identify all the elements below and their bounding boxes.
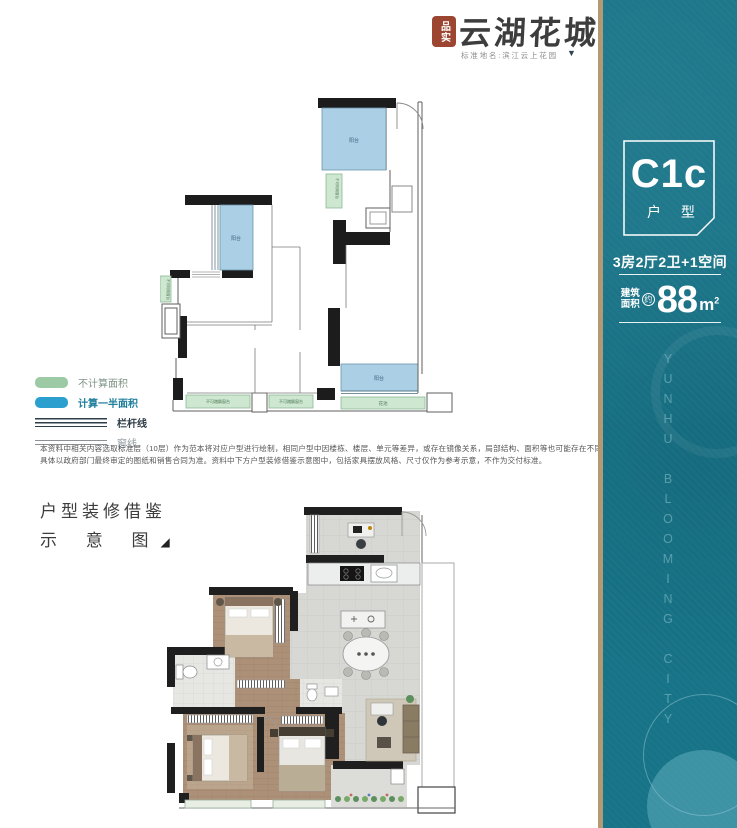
section-heading-line1: 户型装修借鉴 [40, 497, 170, 522]
legend-label: 计算一半面积 [78, 395, 138, 410]
pillow [204, 739, 212, 755]
approx-circle: 约 [642, 293, 655, 306]
headboard [225, 597, 273, 606]
pillow [305, 739, 321, 748]
section-heading-line2: 示 意 图◢ [40, 526, 170, 551]
green-swatch [35, 377, 68, 388]
bedroom-a-furniture [216, 597, 282, 657]
pillow [229, 609, 247, 617]
sink [207, 655, 229, 669]
plant [406, 695, 414, 703]
toilet-tank [176, 665, 183, 679]
brand-arrow-icon: ▼ [567, 48, 576, 58]
sink [325, 687, 338, 696]
unit-layout: 3房2厅2卫+1空间 [603, 252, 737, 272]
balcony-left-label: 阳台 [231, 235, 241, 242]
nightstand [270, 729, 278, 737]
divider-line [619, 274, 721, 275]
kitchen-sink [371, 565, 397, 582]
toilet-tank [307, 684, 317, 689]
washer [391, 769, 404, 784]
legend-item-non-counted: 不计算面积 [35, 376, 195, 388]
sofa [403, 705, 419, 753]
toilet [183, 666, 197, 678]
headboard [193, 735, 202, 781]
legend-item-railing: 栏杆线 [35, 416, 195, 428]
toilet [307, 689, 317, 701]
blanket [229, 735, 247, 781]
balcony-bottom-label: 阳台 [374, 375, 384, 382]
blanket [225, 635, 273, 657]
flyer-page: 品实 云湖花城 标准地名:滨江云上花园 ▼ [0, 0, 737, 828]
side-banner: C1c 户 型 3房2厅2卫+1空间 建筑 面积 约 88 m2 YUNHU B… [598, 0, 737, 828]
legend-label: 栏杆线 [117, 415, 147, 430]
blue-swatch [35, 397, 68, 408]
floorplan-furnished [163, 503, 463, 815]
cooktop [340, 566, 364, 581]
pillow [251, 609, 269, 617]
bay-window-label: 不可踏飘窗台 [279, 398, 303, 404]
partitions [187, 205, 346, 393]
pillow [204, 759, 212, 775]
area-label-bottom: 面积 [621, 299, 640, 310]
legend-label: 不计算面积 [78, 375, 128, 390]
desk-chair [356, 539, 366, 549]
duct-label: 不可利用窗台 [335, 178, 340, 199]
unit-code: C1c [623, 152, 715, 197]
area-unit-m: m [699, 295, 714, 314]
area-unit: m2 [699, 295, 719, 315]
divider-line [619, 322, 721, 323]
half-area-rooms [220, 108, 418, 391]
nightstand [187, 775, 193, 781]
blanket [279, 765, 325, 791]
coffee-table [377, 737, 391, 748]
living-room-furniture [366, 695, 419, 761]
unit-badge: C1c 户 型 [623, 140, 715, 236]
brand-subtitle: 标准地名:滨江云上花园 [461, 50, 558, 61]
dining-set [343, 629, 389, 680]
section-heading: 户型装修借鉴 示 意 图◢ [40, 497, 170, 551]
section-heading-text: 示 意 图 [40, 531, 160, 550]
work-desk [371, 703, 393, 715]
flower-bed-label: 花池 [379, 400, 388, 407]
area-unit-sup: 2 [714, 295, 719, 305]
brand-seal: 品实 [432, 16, 456, 47]
nightstand [187, 735, 193, 741]
disclaimer-text: 本资料中相关内容选取标准层（10层）作为范本将对应户型进行绘制，相同户型中因楼栋… [40, 443, 610, 466]
door-arcs [397, 103, 423, 129]
legend-item-half-area: 计算一半面积 [35, 396, 195, 408]
chair [377, 716, 387, 726]
balcony-top-label: 阳台 [349, 137, 359, 144]
floorplan-technical: 阳台 阳台 阳台 花池 不可踏飘窗台 不可踏飘窗台 不可利用窗台 不可利用窗台 [160, 90, 455, 425]
vertical-brand-text: YUNHU BLOOMING CITY [661, 352, 675, 792]
side-label: 不可利用窗台 [166, 279, 171, 300]
railing-line-sample [35, 418, 107, 427]
area-label: 建筑 面积 [621, 280, 640, 310]
area-label-top: 建筑 [621, 288, 640, 299]
area-row: 建筑 面积 约 88 m2 [603, 280, 737, 320]
brand-name: 云湖花城 [458, 8, 600, 54]
bay-window-label: 不可踏飘窗台 [206, 398, 230, 404]
unit-code-label: 户 型 [629, 202, 721, 222]
bedroom-b-furniture [187, 725, 253, 789]
headboard [279, 727, 325, 736]
area-value: 88 [657, 280, 697, 320]
laptop [353, 526, 362, 533]
island-counter [341, 611, 385, 628]
bedroom-c-furniture [270, 727, 334, 791]
desk-lamp [368, 526, 372, 530]
nightstand [216, 598, 224, 606]
pillow [283, 739, 299, 748]
nightstand [326, 729, 334, 737]
nightstand [274, 598, 282, 606]
